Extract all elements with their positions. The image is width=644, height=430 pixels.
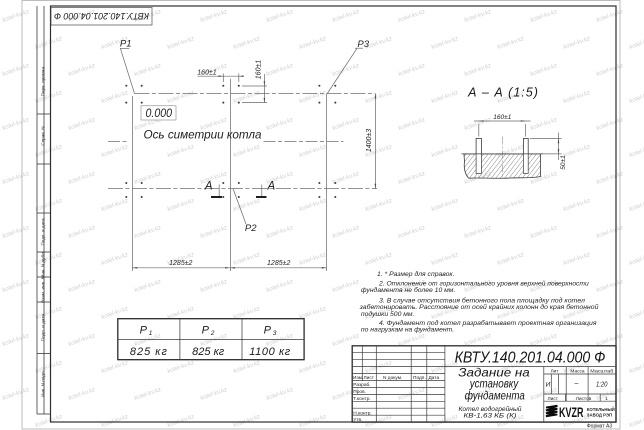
svg-text:Р2: Р2 xyxy=(245,223,257,234)
svg-text:Т.контр.: Т.контр. xyxy=(353,396,370,402)
svg-text:фундамента не более 10 мм.: фундамента не более 10 мм. xyxy=(361,286,456,294)
svg-text:Подп. и дата: Подп. и дата xyxy=(41,314,46,342)
svg-text:А: А xyxy=(204,181,213,193)
svg-text:825 кг: 825 кг xyxy=(130,346,168,358)
svg-text:1285±2: 1285±2 xyxy=(169,260,192,267)
svg-text:Взам. инв. N: Взам. инв. N xyxy=(41,276,46,303)
svg-text:Ось симетрии котла: Ось симетрии котла xyxy=(144,130,262,142)
svg-text:Подп. и дата: Подп. и дата xyxy=(41,218,46,246)
svg-text:Листов: Листов xyxy=(576,396,592,402)
svg-text:Справ. N: Справ. N xyxy=(41,126,46,145)
svg-text:0.000: 0.000 xyxy=(146,108,173,120)
svg-text:160±1: 160±1 xyxy=(493,114,511,121)
svg-text:1:20: 1:20 xyxy=(596,381,608,388)
svg-text:Пров.: Пров. xyxy=(353,389,366,395)
svg-text:Перв. примен.: Перв. примен. xyxy=(41,66,46,97)
svg-text:Формат А3: Формат А3 xyxy=(587,423,612,429)
svg-text:50±1: 50±1 xyxy=(560,155,567,170)
svg-text:KVZR: KVZR xyxy=(559,405,584,420)
svg-text:А: А xyxy=(266,181,275,193)
svg-text:подушки 500 мм.: подушки 500 мм. xyxy=(361,310,415,318)
svg-text:Утв.: Утв. xyxy=(353,417,362,423)
svg-text:Лит: Лит xyxy=(550,369,559,375)
svg-text:Лист: Лист xyxy=(364,375,375,381)
svg-text:Подп.: Подп. xyxy=(413,375,426,381)
svg-text:И: И xyxy=(546,381,551,388)
svg-text:фундамента: фундамента xyxy=(465,388,525,402)
svg-text:1100 кг: 1100 кг xyxy=(249,346,291,358)
svg-text:КВ-1,63 КБ (К): КВ-1,63 КБ (К) xyxy=(464,414,517,420)
svg-text:Дата: Дата xyxy=(429,375,440,381)
svg-text:Разраб.: Разраб. xyxy=(353,382,370,388)
svg-text:Изм.: Изм. xyxy=(353,375,363,381)
svg-text:Инв. N подл.: Инв. N подл. xyxy=(41,370,46,397)
svg-text:–: – xyxy=(575,380,579,387)
svg-text:КВТУ.140.201.04.000 Ф: КВТУ.140.201.04.000 Ф xyxy=(455,349,606,366)
svg-text:по нагрузкам на фундамент.: по нагрузкам на фундамент. xyxy=(361,325,454,333)
svg-text:КОТЕЛЬНЫЙ: КОТЕЛЬНЫЙ xyxy=(587,407,615,412)
svg-text:Р1: Р1 xyxy=(120,38,132,49)
svg-text:160±1: 160±1 xyxy=(255,60,262,80)
svg-text:Масса: Масса xyxy=(570,369,585,375)
svg-text:Инв. N дубл.: Инв. N дубл. xyxy=(41,251,46,278)
svg-text:1: 1 xyxy=(605,396,608,402)
svg-text:ЗАВОД РЭП: ЗАВОД РЭП xyxy=(587,412,612,417)
svg-text:160±1: 160±1 xyxy=(197,70,217,77)
svg-text:Котел водогрейный: Котел водогрейный xyxy=(459,406,523,413)
svg-text:КВТУ.140.201.04.000 Ф: КВТУ.140.201.04.000 Ф xyxy=(54,10,149,21)
svg-text:забетонировать. Расстояние от: забетонировать. Расстояние от осей крайн… xyxy=(359,303,599,311)
svg-text:N докум.: N докум. xyxy=(383,375,402,381)
svg-text:Масштаб: Масштаб xyxy=(590,369,613,375)
svg-text:1. * Размер для справок.: 1. * Размер для справок. xyxy=(377,270,455,278)
svg-text:Лист: Лист xyxy=(547,396,558,402)
svg-text:1400±3: 1400±3 xyxy=(366,129,373,152)
svg-text:Н.контр.: Н.контр. xyxy=(353,411,371,417)
svg-text:1285±2: 1285±2 xyxy=(267,260,290,267)
svg-text:825 кг: 825 кг xyxy=(192,346,225,358)
svg-text:А – А (1:5): А – А (1:5) xyxy=(467,86,539,100)
